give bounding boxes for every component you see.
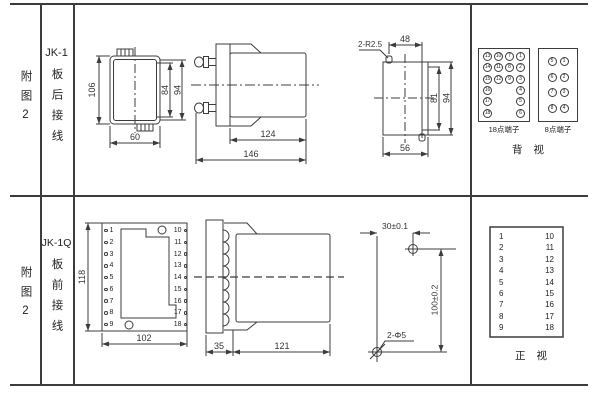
pin-item: 3 bbox=[104, 251, 113, 258]
pin-item: 8 bbox=[104, 309, 113, 316]
side-view-front-drawing: 35 121 bbox=[194, 220, 344, 356]
terminal-circle: 6 bbox=[548, 73, 557, 82]
pin-hole-icon bbox=[184, 288, 188, 292]
drawing-sheet: 附图2 JK-1 板后接线 附图2 JK-1Q 板前接线 106 84 94 6… bbox=[0, 0, 600, 400]
terminal-number: 16 bbox=[545, 301, 554, 309]
terminal-circle: 13 bbox=[483, 52, 492, 61]
pin-hole-icon bbox=[104, 323, 108, 327]
dim-side-body: 124 bbox=[260, 129, 275, 139]
terminal-circle: 10 bbox=[494, 52, 503, 61]
terminal-number: 11 bbox=[546, 244, 554, 252]
terminal-number: 15 bbox=[545, 290, 554, 298]
rear-view-drawing: 106 84 94 60 bbox=[87, 47, 186, 148]
pin-hole-icon bbox=[184, 323, 188, 327]
front-panel-right-numbers: 101112131415161718 bbox=[532, 233, 554, 332]
hole-diameter-label: 2-Φ5 bbox=[387, 330, 406, 340]
front-panel-left-numbers: 123456789 bbox=[499, 233, 503, 332]
pin-hole-icon bbox=[104, 241, 108, 245]
terminal-circle: 7 bbox=[505, 52, 514, 61]
pin-hole-icon bbox=[184, 252, 188, 256]
terminal-circle: 1 bbox=[516, 52, 525, 61]
pin-item: 17 bbox=[174, 309, 187, 316]
pin-hole-icon bbox=[184, 299, 188, 303]
pin-hole-icon bbox=[104, 252, 108, 256]
pin-item: 7 bbox=[104, 298, 113, 305]
terminal-number: 7 bbox=[499, 301, 503, 309]
pin-hole-icon bbox=[104, 288, 108, 292]
terminal-circle: 4 bbox=[516, 86, 525, 95]
front-plate-pins-right: 101112131415161718 bbox=[164, 227, 187, 328]
pin-hole-icon bbox=[184, 311, 188, 315]
terminal-number: 9 bbox=[499, 324, 503, 332]
terminal-circle: 3 bbox=[516, 75, 525, 84]
terminal-circle: 5 bbox=[548, 57, 557, 66]
terminal-block-18-label: 18点端子 bbox=[474, 126, 534, 134]
terminal-block-8-label: 8点端子 bbox=[532, 126, 584, 134]
pin-item: 9 bbox=[104, 321, 113, 328]
back-view-caption: 背 视 bbox=[498, 145, 562, 156]
terminal-circle: 2 bbox=[560, 73, 569, 82]
dim-hole-spacing-v: 100±0.2 bbox=[430, 284, 440, 315]
terminal-number: 3 bbox=[499, 256, 503, 264]
pin-hole-icon bbox=[184, 241, 188, 245]
pin-item: 12 bbox=[174, 251, 187, 258]
pin-item: 16 bbox=[174, 298, 187, 305]
terminal-circle: 12 bbox=[494, 75, 503, 84]
terminal-circle: 9 bbox=[505, 75, 514, 84]
pin-item: 6 bbox=[104, 286, 113, 293]
terminal-circle: 17 bbox=[483, 97, 492, 106]
terminal-circle: 5 bbox=[516, 97, 525, 106]
dim-plate-depth: 35 bbox=[214, 341, 224, 351]
pin-item: 13 bbox=[174, 262, 187, 269]
terminal-block-18: 131071141182151293164175186 bbox=[478, 48, 530, 122]
terminal-number: 6 bbox=[499, 290, 503, 298]
pin-item: 14 bbox=[174, 274, 187, 281]
terminal-circle: 15 bbox=[483, 75, 492, 84]
pin-item: 5 bbox=[104, 274, 113, 281]
terminal-number: 5 bbox=[499, 279, 503, 287]
terminal-circle: 8 bbox=[505, 63, 514, 72]
pin-hole-icon bbox=[184, 276, 188, 280]
front-plate-pins-left: 123456789 bbox=[104, 227, 113, 328]
dim-cutout-top: 48 bbox=[400, 34, 410, 44]
terminal-circle: 8 bbox=[548, 104, 557, 113]
dim-cutout-outer: 94 bbox=[442, 93, 452, 103]
terminal-number: 8 bbox=[499, 313, 503, 321]
terminal-circle: 4 bbox=[560, 104, 569, 113]
pin-item: 18 bbox=[174, 321, 187, 328]
terminal-number: 1 bbox=[499, 233, 503, 241]
drill-plan-drawing: 30±0.1 100±0.2 2-Φ5 bbox=[360, 221, 456, 362]
side-view-drawing: 124 146 bbox=[191, 44, 319, 164]
front-view-caption: 正 视 bbox=[501, 351, 565, 362]
terminal-circle: 1 bbox=[560, 57, 569, 66]
terminal-number: 14 bbox=[545, 279, 554, 287]
cutout-radius-label: 2-R2.5 bbox=[358, 40, 383, 49]
pin-hole-icon bbox=[184, 229, 188, 233]
terminal-number: 18 bbox=[545, 324, 554, 332]
dim-plate-width: 102 bbox=[136, 333, 151, 343]
pin-hole-icon bbox=[184, 264, 188, 268]
terminal-number: 2 bbox=[499, 244, 503, 252]
terminal-circle: 2 bbox=[516, 63, 525, 72]
terminal-number: 4 bbox=[499, 267, 503, 275]
pin-hole-icon bbox=[104, 264, 108, 268]
dim-cutout-inner: 81 bbox=[429, 93, 439, 103]
dim-side-total: 146 bbox=[243, 149, 258, 159]
pin-item: 4 bbox=[104, 262, 113, 269]
pin-item: 1 bbox=[104, 227, 113, 234]
dim-body-length: 121 bbox=[274, 341, 289, 351]
dim-rear-terminal: 94 bbox=[173, 85, 183, 95]
terminal-circle: 6 bbox=[516, 109, 525, 118]
dim-rear-height: 106 bbox=[87, 82, 97, 97]
pin-hole-icon bbox=[104, 311, 108, 315]
terminal-circle: 7 bbox=[548, 88, 557, 97]
pin-hole-icon bbox=[104, 299, 108, 303]
terminal-circle: 18 bbox=[483, 109, 492, 118]
dim-plate-height: 118 bbox=[77, 270, 87, 284]
dim-rear-inner: 84 bbox=[160, 85, 170, 95]
dim-cutout-bottom: 56 bbox=[400, 143, 410, 153]
terminal-number: 13 bbox=[545, 267, 554, 275]
terminal-circle: 14 bbox=[483, 63, 492, 72]
terminal-number: 12 bbox=[545, 256, 554, 264]
pin-item: 2 bbox=[104, 239, 113, 246]
cutout-drawing: 48 56 81 94 2-R2.5 bbox=[358, 34, 453, 157]
pin-item: 15 bbox=[174, 286, 187, 293]
pin-item: 10 bbox=[174, 227, 187, 234]
terminal-number: 17 bbox=[545, 313, 554, 321]
pin-hole-icon bbox=[104, 229, 108, 233]
terminal-number: 10 bbox=[545, 233, 554, 241]
terminal-circle: 11 bbox=[494, 63, 503, 72]
dim-hole-spacing-h: 30±0.1 bbox=[382, 221, 408, 231]
terminal-block-8: 51627384 bbox=[538, 48, 578, 122]
dim-rear-width: 60 bbox=[130, 132, 140, 142]
pin-hole-icon bbox=[104, 276, 108, 280]
pin-item: 11 bbox=[174, 239, 187, 246]
terminal-circle: 3 bbox=[560, 88, 569, 97]
terminal-circle: 16 bbox=[483, 86, 492, 95]
